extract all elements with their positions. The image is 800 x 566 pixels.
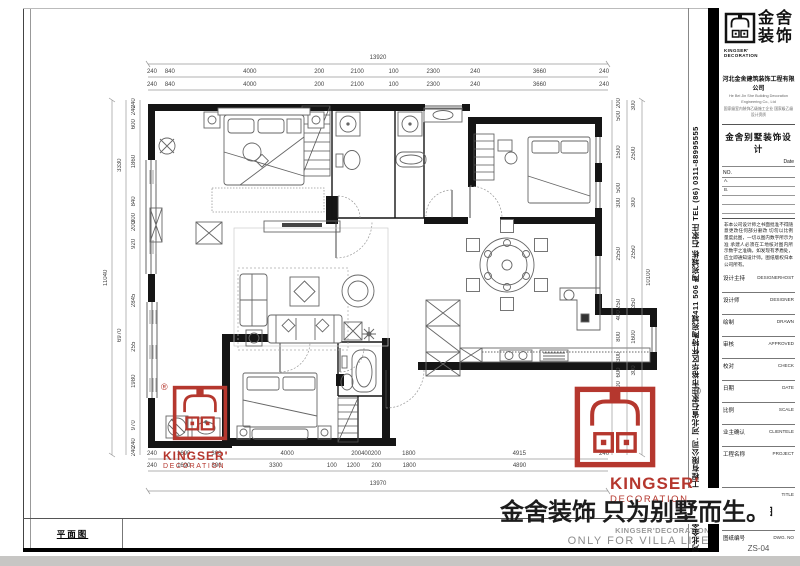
dining-table <box>467 220 548 311</box>
stamp-right: KINGSER' DECORATION <box>572 384 692 505</box>
row-label-zh: 校对 <box>723 362 734 370</box>
dimension-label: 200 <box>373 463 380 469</box>
dimension-label: 800 <box>616 322 622 351</box>
row-label-zh: 比例 <box>723 406 734 414</box>
titleblock-rows: 设计主持DESIGNERHOST设计师DESIGNER绘制DRAWN审核APPR… <box>722 271 795 447</box>
dimension-label: 240 <box>148 69 156 75</box>
dimension-label: 13970 <box>148 481 608 487</box>
titleblock-row: 设计师DESIGNER <box>722 293 795 315</box>
dimension-label: 1600 <box>631 309 637 365</box>
dimension-label: 300 <box>631 100 637 110</box>
dimension-label: 200 <box>131 223 137 229</box>
dimension-label: 840 <box>131 189 137 214</box>
dimension-label: 2100 <box>323 69 392 75</box>
dimension-label: 2550 <box>631 208 637 297</box>
dimension-label: 300 <box>631 197 637 207</box>
titleblock-row: 日期DATE <box>722 381 795 403</box>
dimension-label: 2300 <box>395 69 471 75</box>
dimension-label: 240 <box>148 82 156 88</box>
row-label-en: APPROVED <box>768 341 794 346</box>
dimension-label: 840 <box>156 82 184 88</box>
dimension-label: 200 <box>353 451 360 457</box>
dimension-label: 11040 <box>103 115 109 441</box>
master-bedroom <box>150 108 324 242</box>
row-label-zh: 日期 <box>723 384 734 392</box>
row-label-en: DESIGNERHOST <box>757 275 794 280</box>
no-label: NO. <box>722 167 795 178</box>
kingser-emblem-red <box>572 384 658 470</box>
dimension-label: 500 <box>616 179 622 197</box>
disclaimer: 非本公司设计师之书面批准不得随意更改任何部分删改 切勿以比例量度此图，一切以图内… <box>722 218 795 272</box>
dimension-label: 1980 <box>131 351 137 411</box>
row-label-en: DATE <box>782 385 794 390</box>
dimension-label: 1500 <box>616 125 622 179</box>
series-title: 金舍别墅装饰设计 <box>722 124 795 155</box>
row-label-zh: 设计师 <box>723 296 740 304</box>
dim-top-total: 13920 <box>148 53 608 62</box>
registered-mark: ® <box>161 382 168 392</box>
titleblock-row: 校对CHECK <box>722 359 795 381</box>
stamp-brand-top: KINGSER' <box>163 449 235 463</box>
dimension-label: 200 <box>373 451 380 457</box>
stairs <box>302 106 494 442</box>
stamp-brand-top: KINGSER' <box>610 474 692 494</box>
titleblock-logo: 金舍 装饰 KINGSER' DECORATION <box>722 8 795 68</box>
dimension-label: 400 <box>616 308 622 322</box>
dimension-label: 200 <box>316 69 323 75</box>
row-label-en: CHECK <box>778 363 794 368</box>
titleblock-row: 业主确认CLIENTELE <box>722 425 795 447</box>
titleblock-row: 比例SCALE <box>722 403 795 425</box>
dimension-label: 2100 <box>323 82 392 88</box>
dim-top-row1: 2408404000200210010023002403660240 <box>148 68 608 76</box>
living-room <box>196 221 376 346</box>
plan-label: 平面图 <box>57 528 89 540</box>
dim-left-inner: 2402406001860840300200920284525519809702… <box>128 100 139 455</box>
dimension-label: 3330 <box>117 115 123 215</box>
ruled-line <box>722 205 795 214</box>
dimension-label: 1200 <box>334 463 374 469</box>
kingser-emblem-red <box>171 384 229 442</box>
date-label: Date <box>722 155 795 167</box>
dimension-label: 250 <box>616 299 622 308</box>
dimension-label: 240 <box>148 451 156 457</box>
dimension-label: 240 <box>131 107 137 114</box>
row-label-zh: 审核 <box>723 340 734 348</box>
dimension-label: 6970 <box>117 230 123 441</box>
titleblock-row: 审核APPROVED <box>722 337 795 359</box>
dimension-label: 240 <box>148 463 156 469</box>
dimension-label: 3660 <box>479 82 600 88</box>
dimension-label: 4000 <box>184 82 316 88</box>
dimension-label: 13920 <box>148 55 608 61</box>
brand-zh-line1: 金舍 <box>758 10 794 28</box>
brand-zh: 金舍 装饰 <box>758 10 794 47</box>
row-label-en: PROJECT <box>773 451 794 456</box>
kingser-emblem-black <box>724 12 756 44</box>
dimension-label: 240 <box>471 69 479 75</box>
dimension-label: 3300 <box>221 463 330 469</box>
titleblock-row-dwgno: 图纸编号 DWG. NO ZS-04 <box>722 531 795 560</box>
dim-bottom-total: 13970 <box>148 479 608 488</box>
ruled-line: A. <box>722 178 795 187</box>
dimension-label: 1800 <box>379 451 438 457</box>
dimension-label: 1860 <box>131 133 137 189</box>
row-label-zh: 业主确认 <box>723 428 745 436</box>
plan-label-cell: 平面图 <box>23 519 123 549</box>
dimension-label: 3660 <box>479 69 600 75</box>
brand-zh-line2: 装饰 <box>758 28 794 46</box>
row-label-zh: 图纸编号 <box>723 534 745 542</box>
row-label-en: SCALE <box>779 407 794 412</box>
row-label-en: CLIENTELE <box>769 429 794 434</box>
drawing-number-value: ZS-04 <box>722 544 795 553</box>
dimension-label: 300 <box>616 351 622 362</box>
row-label-en: TITLE <box>781 492 794 497</box>
ruled-line <box>722 196 795 205</box>
divider-black-bar <box>708 8 719 552</box>
dimension-label: 840 <box>156 69 184 75</box>
dimension-label: 4000 <box>184 69 316 75</box>
company-strip-vertical: 河北金舍建筑装饰工程有限公司. 河北省石家庄市裕华区怀特陶宛城411 506 陶… <box>690 8 707 552</box>
titleblock-row: 设计主持DESIGNERHOST <box>722 271 795 293</box>
stamp-left: ® KINGSER' DECORATION <box>163 384 235 470</box>
registered-mark: ® <box>692 384 701 398</box>
ruled-line: B. <box>722 187 795 196</box>
brand-en-line2: DECORATION <box>724 53 758 58</box>
page-gray-band <box>0 556 800 566</box>
company-name: 河北金舍建筑装饰工程有限公司 <box>722 74 795 92</box>
dimension-label: 1800 <box>380 463 439 469</box>
dim-top-row2: 2408404000200210010023002403660240 <box>148 81 608 89</box>
titleblock-row: 绘制DRAWN <box>722 315 795 337</box>
dimension-label: 2550 <box>616 208 622 299</box>
row-label-en: DWG. NO <box>773 535 794 540</box>
dimension-label: 240 <box>471 82 479 88</box>
row-label-zh: 绘制 <box>723 318 734 326</box>
dim-left-mid: 33306970 <box>114 100 125 455</box>
slogan: 金舍装饰 只为别墅而生。 <box>500 492 770 527</box>
dim-left-total: 11040 <box>100 100 111 455</box>
dimension-label: 2300 <box>395 82 471 88</box>
stamp-brand-bottom: DECORATION <box>163 463 235 470</box>
row-label-en: DESIGNER <box>770 297 794 302</box>
sheet-bottom-bar <box>23 548 712 552</box>
dimension-label: 500 <box>616 107 622 125</box>
dimension-label: 2845 <box>131 257 137 343</box>
row-label-zh: 设计主持 <box>723 274 745 282</box>
dimension-label: 920 <box>131 230 137 258</box>
dimension-label: 200 <box>316 82 323 88</box>
row-label-zh: 工程名称 <box>723 450 745 458</box>
dimension-label: 300 <box>631 365 637 375</box>
dimension-label: 240 <box>600 82 608 88</box>
bedroom-top-right <box>498 137 590 203</box>
dimension-label: 240 <box>600 69 608 75</box>
dimension-label: 600 <box>616 362 622 384</box>
bedroom-bottom <box>237 373 331 439</box>
dimension-label: 350 <box>631 297 637 309</box>
dimension-label: 600 <box>131 115 137 133</box>
bathrooms-top <box>336 108 462 170</box>
drawing-sheet: { "sheet": { "plan_label": "平面图", "sloga… <box>0 0 800 566</box>
title-block: 金舍 装饰 KINGSER' DECORATION 河北金舍建筑装饰工程有限公司… <box>722 8 795 552</box>
dimension-label: 300 <box>616 197 622 208</box>
row-label-en: DRAWN <box>777 319 794 324</box>
dimension-label: 2500 <box>631 110 637 197</box>
brand-en: KINGSER' DECORATION <box>724 48 758 59</box>
titleblock-row-project: 工程名称 PROJECT <box>722 447 795 488</box>
company-name-en: He Bei Jin She Building Decoration Engin… <box>722 94 795 105</box>
dimension-label: 4000 <box>221 451 353 457</box>
dimension-label: 240 <box>131 448 137 455</box>
dimension-label: 970 <box>131 411 137 440</box>
company-qualification: 国家级室内装饰乙级施工企业 国家级乙级设计资质 <box>722 107 795 118</box>
